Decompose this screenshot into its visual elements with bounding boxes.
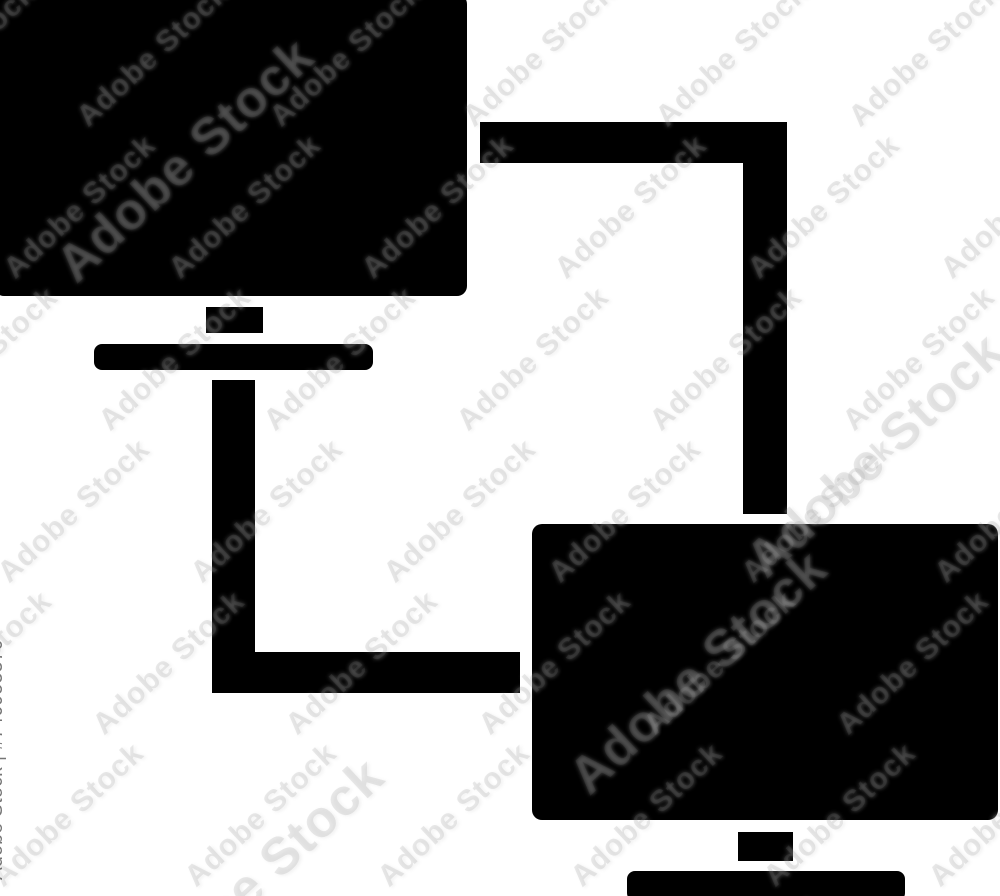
top-left-computer — [0, 0, 467, 370]
bottom-right-computer — [532, 524, 998, 896]
bottom-right-monitor-stand — [627, 871, 905, 896]
bottom-right-monitor-screen — [532, 524, 998, 820]
top-left-monitor-neck — [206, 307, 263, 333]
stock-id-watermark: Adobe Stock | #746953370 — [0, 639, 8, 880]
connected-computers-icon — [0, 0, 1000, 896]
right-connector-line — [480, 122, 787, 514]
bottom-right-monitor-neck — [738, 832, 793, 861]
top-left-monitor-stand — [94, 344, 373, 370]
icon-shapes — [0, 0, 998, 896]
stock-image-canvas: Adobe StockAdobe StockAdobe StockAdobe S… — [0, 0, 1000, 896]
top-left-monitor-screen — [0, 0, 467, 296]
left-connector-line — [212, 380, 520, 693]
